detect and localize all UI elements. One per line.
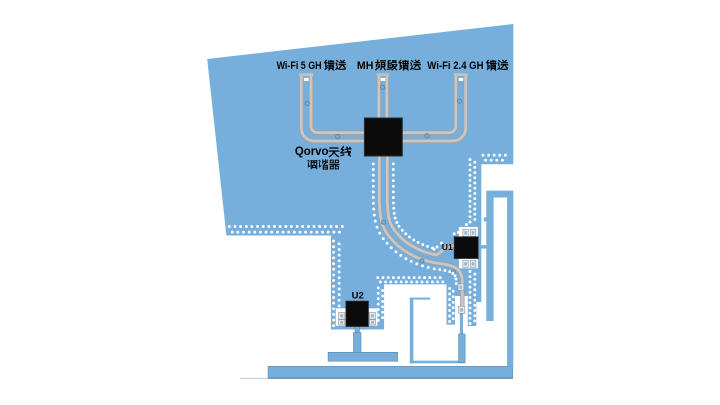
svg-text:U1: U1	[442, 242, 453, 252]
svg-text:Wi-Fi 2.4 GH: Wi-Fi 2.4 GH	[427, 60, 483, 72]
svg-text:U2: U2	[352, 290, 364, 301]
svg-text:Qorvo: Qorvo	[295, 146, 329, 158]
svg-text:Wi-Fi 5 GH: Wi-Fi 5 GH	[277, 60, 322, 72]
svg-text:MH: MH	[357, 60, 373, 72]
